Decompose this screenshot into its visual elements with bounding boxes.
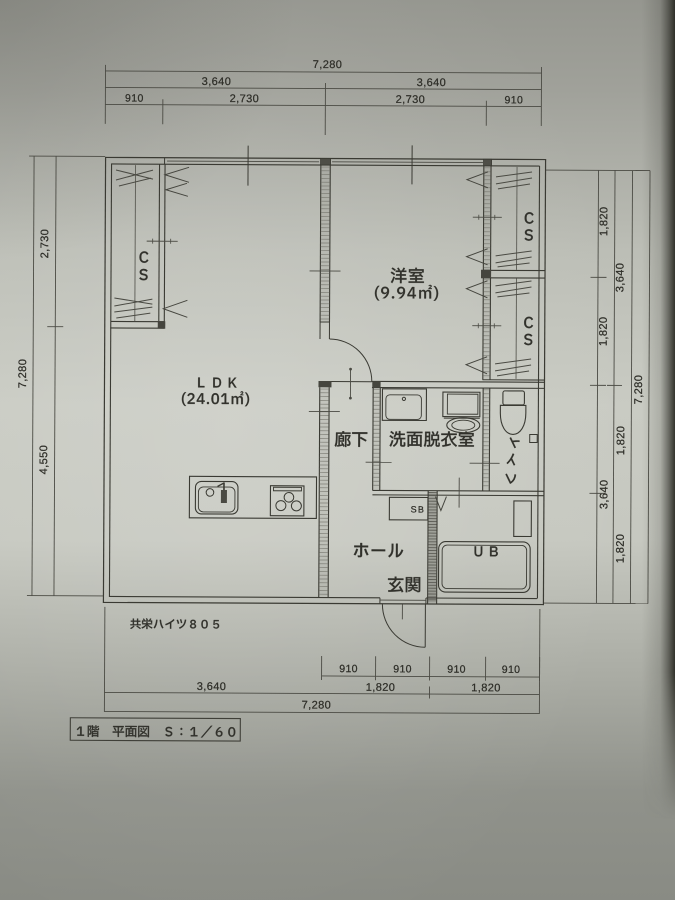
svg-text:3,640: 3,640 [614,263,626,293]
svg-text:7,280: 7,280 [633,375,645,405]
svg-text:2,730: 2,730 [230,93,260,105]
svg-text:3,640: 3,640 [598,480,610,510]
svg-text:910: 910 [502,664,521,676]
svg-text:3,640: 3,640 [417,77,447,89]
svg-text:1,820: 1,820 [598,207,610,237]
svg-text:2,730: 2,730 [39,229,51,259]
svg-text:SB: SB [411,504,425,514]
svg-text:910: 910 [393,663,412,675]
svg-text:7,280: 7,280 [302,699,332,711]
svg-text:1,820: 1,820 [598,317,610,347]
svg-text:7,280: 7,280 [313,59,343,71]
svg-text:910: 910 [447,664,466,676]
svg-text:7,280: 7,280 [17,359,29,389]
svg-text:1,820: 1,820 [615,534,627,564]
svg-text:2,730: 2,730 [396,94,426,106]
svg-text:1,820: 1,820 [615,426,627,456]
svg-text:1,820: 1,820 [366,682,396,694]
svg-text:910: 910 [339,663,358,675]
svg-text:3,640: 3,640 [202,76,232,88]
svg-text:4,550: 4,550 [38,445,50,475]
svg-text:910: 910 [504,94,523,106]
svg-text:3,640: 3,640 [197,681,227,693]
svg-text:1,820: 1,820 [471,682,501,694]
svg-text:910: 910 [125,93,144,105]
